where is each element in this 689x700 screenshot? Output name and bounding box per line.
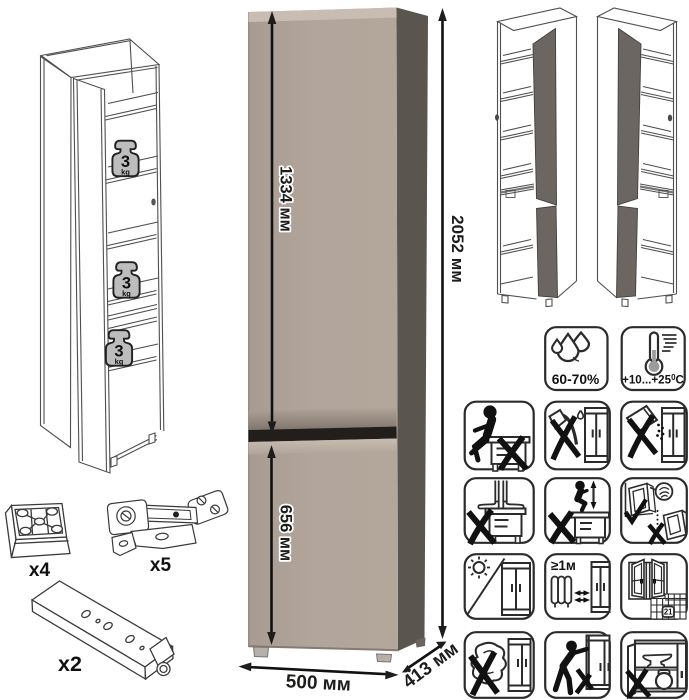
svg-text:21: 21 (664, 608, 673, 617)
svg-text:656 мм: 656 мм (277, 505, 295, 562)
svg-text:1334 мм: 1334 мм (277, 166, 295, 232)
svg-text:60-70%: 60-70% (552, 372, 600, 387)
svg-text:x5: x5 (150, 555, 172, 576)
svg-text:2052 мм: 2052 мм (448, 215, 467, 283)
svg-text:x4: x4 (29, 560, 51, 581)
svg-text:+10...+250C: +10...+250C (622, 373, 684, 387)
svg-text:500 мм: 500 мм (285, 671, 351, 695)
svg-text:x2: x2 (58, 652, 82, 676)
svg-text:≥1м: ≥1м (551, 558, 576, 573)
